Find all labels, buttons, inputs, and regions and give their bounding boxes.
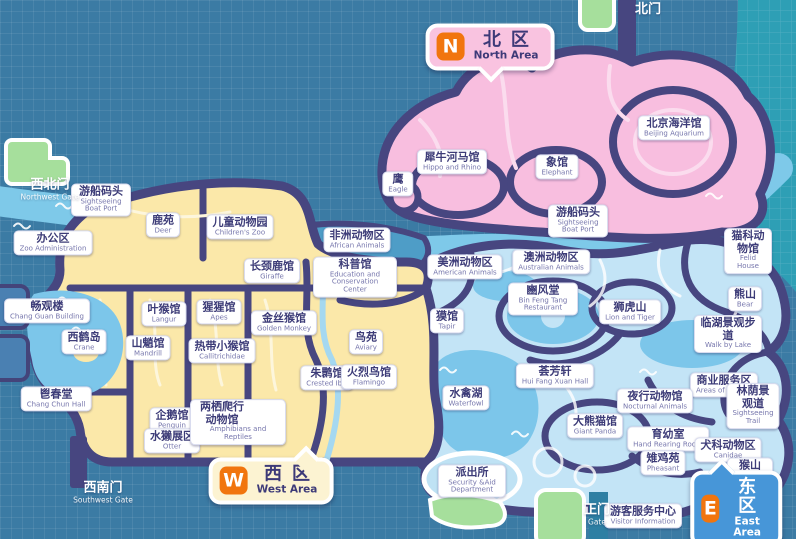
poi-name-zh: 山魈馆: [132, 337, 165, 350]
poi-boat-port-west: 游船码头 Sightseeing Boat Port: [71, 183, 131, 216]
poi-name-en: Golden Monkey: [257, 325, 311, 333]
poi-chang-chun-hall: 鬯春堂 Chang Chun Hall: [21, 386, 92, 411]
gate-name-en: Southwest Gate: [73, 496, 133, 505]
poi-hippo-rhino: 犀牛河马馆 Hippo and Rhino: [417, 149, 487, 174]
poi-tapir: 獏馆 Tapir: [430, 308, 464, 333]
poi-giant-panda: 大熊猫馆 Giant Panda: [567, 413, 623, 438]
poi-giraffe: 长颈鹿馆 Giraffe: [244, 258, 300, 283]
poi-name-zh: 鸟苑: [355, 331, 377, 344]
west-area-title: 西区: [257, 466, 328, 485]
poi-name-en: Lion and Tiger: [605, 314, 655, 322]
poi-name-zh: 荟芳轩: [522, 365, 588, 378]
poi-name-en: African Animals: [330, 242, 385, 250]
poi-name-zh: 长颈鹿馆: [250, 260, 294, 273]
poi-name-zh: 夜行动物馆: [623, 390, 687, 403]
poi-name-en: Giraffe: [250, 273, 294, 281]
east-area-title: 东区: [729, 479, 776, 517]
poi-name-zh: 科普馆: [319, 259, 391, 272]
poi-sightseeing-trail: 林荫景观道 Sightseeing Trail: [726, 383, 779, 429]
north-area-title: 北区: [474, 32, 549, 51]
poi-name-zh: 金丝猴馆: [257, 312, 311, 325]
poi-name-en: Elephant: [541, 169, 572, 177]
east-area-badge: E 东区 East Area: [690, 471, 782, 539]
poi-aviary: 鸟苑 Aviary: [349, 329, 383, 354]
poi-name-en: Tapir: [436, 323, 458, 331]
poi-name-zh: 办公区: [20, 232, 87, 245]
poi-walk-by-lake: 临湖景观步道 Walk by Lake: [694, 315, 762, 353]
poi-name-zh: 儿童动物园: [213, 216, 268, 229]
poi-lion-tiger: 狮虎山 Lion and Tiger: [599, 299, 661, 324]
poi-amphibians-reptiles: 两栖爬行动物馆 Amphibians and Reptiles: [190, 399, 286, 445]
poi-name-zh: 鹿苑: [152, 214, 174, 227]
poi-bear: 熊山 Bear: [728, 286, 762, 311]
west-area-subtitle: West Area: [257, 484, 318, 495]
poi-callitrichidae: 热带小猴馆 Callitrichidae: [189, 338, 256, 363]
poi-name-zh: 游船码头: [554, 206, 602, 219]
poi-childrens-zoo: 儿童动物园 Children's Zoo: [207, 214, 274, 239]
poi-mandrill: 山魈馆 Mandrill: [126, 335, 171, 360]
gate-main-gate: 正门 Gate: [584, 503, 610, 526]
poi-deer: 鹿苑 Deer: [146, 212, 180, 237]
poi-name-en: Walk by Lake: [700, 342, 756, 350]
poi-name-zh: 非洲动物区: [330, 229, 385, 242]
poi-name-en: Zoo Administration: [20, 245, 87, 253]
gate-name-zh: 西南门: [73, 481, 133, 495]
poi-name-zh: 犬科动物区: [701, 439, 756, 452]
west-area-letter-icon: W: [220, 467, 248, 495]
labels-layer: 北京海洋馆 Beijing Aquarium 犀牛河马馆 Hippo and R…: [0, 0, 796, 539]
poi-name-en: Callitrichidae: [195, 353, 250, 361]
poi-security-department: 派出所 Security &Aid Department: [438, 464, 506, 497]
poi-name-zh: 火烈鸟馆: [347, 366, 391, 379]
poi-name-en: Bin Feng Tang Restaurant: [514, 297, 572, 312]
poi-name-zh: 熊山: [734, 288, 756, 301]
poi-name-en: Otter: [150, 443, 194, 451]
poi-waterfowl-lake: 水禽湖 Waterfowl: [442, 385, 489, 410]
poi-name-zh: 象馆: [541, 156, 572, 169]
poi-american-animals: 美洲动物区 American Animals: [427, 254, 502, 279]
poi-zoo-administration: 办公区 Zoo Administration: [14, 230, 93, 255]
poi-name-zh: 派出所: [444, 466, 500, 479]
poi-hui-fang-xuan: 荟芳轩 Hui Fang Xuan Hall: [516, 363, 594, 388]
poi-elephant: 象馆 Elephant: [535, 154, 578, 179]
gate-north-gate: 北门: [635, 3, 661, 17]
gate-name-en: Gate: [584, 518, 610, 527]
poi-name-en: Flamingo: [347, 379, 391, 387]
poi-name-zh: 美洲动物区: [433, 256, 496, 269]
poi-bin-feng-tang: 豳风堂 Bin Feng Tang Restaurant: [508, 282, 578, 315]
poi-pheasant: 雉鸡苑 Pheasant: [641, 450, 686, 475]
poi-australian-animals: 澳洲动物区 Australian Animals: [512, 249, 590, 274]
gate-name-zh: 正门: [584, 503, 610, 517]
poi-name-zh: 猩猩馆: [203, 301, 236, 314]
poi-name-zh: 游船码头: [77, 185, 125, 198]
west-area-badge: W 西区 West Area: [209, 458, 334, 505]
poi-name-zh: 育幼室: [633, 428, 703, 441]
poi-name-zh: 犀牛河马馆: [423, 151, 481, 164]
poi-name-en: Langur: [148, 316, 181, 324]
poi-name-en: Children's Zoo: [213, 229, 268, 237]
poi-name-zh: 林荫景观道: [732, 385, 773, 410]
poi-name-zh: 猫科动物馆: [730, 230, 766, 255]
poi-name-zh: 热带小猴馆: [195, 340, 250, 353]
gate-southwest-gate: 西南门 Southwest Gate: [73, 481, 133, 504]
poi-name-en: American Animals: [433, 269, 496, 277]
poi-name-en: Mandrill: [132, 350, 165, 358]
poi-boat-port-east: 游船码头 Sightseeing Boat Port: [548, 204, 608, 237]
poi-name-en: Sightseeing Trail: [732, 410, 773, 425]
poi-name-zh: 獏馆: [436, 310, 458, 323]
poi-eagle: 鹰 Eagle: [382, 171, 413, 196]
poi-education-center: 科普馆 Education and Conservation Center: [313, 257, 397, 298]
poi-name-zh: 北京海洋馆: [644, 117, 704, 130]
poi-langur: 叶猴馆 Langur: [142, 301, 187, 326]
poi-felid-house: 猫科动物馆 Felid House: [724, 228, 772, 274]
poi-name-en: Chang Guan Building: [10, 313, 84, 321]
poi-name-en: Visitor Information: [610, 518, 676, 526]
north-area-subtitle: North Area: [474, 50, 539, 61]
poi-name-zh: 豳风堂: [514, 284, 572, 297]
poi-name-en: Amphibians and Reptiles: [196, 426, 280, 441]
east-area-letter-icon: E: [701, 495, 719, 523]
poi-name-en: Waterfowl: [448, 400, 483, 408]
poi-name-en: Deer: [152, 227, 174, 235]
poi-name-zh: 水獭展区: [150, 430, 194, 443]
gate-name-en: Northwest Gate: [21, 193, 80, 202]
poi-name-en: Sightseeing Boat Port: [77, 198, 125, 213]
poi-crane-island: 西鹤岛 Crane: [62, 329, 107, 354]
poi-name-en: Education and Conservation Center: [319, 271, 391, 294]
poi-name-zh: 鹰: [388, 173, 407, 186]
poi-name-en: Sightseeing Boat Port: [554, 219, 602, 234]
poi-name-en: Security &Aid Department: [444, 479, 500, 494]
poi-name-zh: 鬯春堂: [27, 388, 86, 401]
poi-name-zh: 临湖景观步道: [700, 317, 756, 342]
poi-beijing-aquarium: 北京海洋馆 Beijing Aquarium: [638, 115, 710, 140]
poi-name-en: Hippo and Rhino: [423, 164, 481, 172]
poi-name-en: Apes: [203, 314, 236, 322]
poi-name-en: Crane: [68, 344, 101, 352]
poi-name-zh: 叶猴馆: [148, 303, 181, 316]
poi-golden-monkey: 金丝猴馆 Golden Monkey: [251, 310, 317, 335]
poi-name-zh: 澳洲动物区: [518, 251, 584, 264]
poi-name-zh: 两栖爬行动物馆: [196, 401, 248, 426]
poi-name-en: Giant Panda: [573, 428, 617, 436]
poi-name-zh: 水禽湖: [448, 387, 483, 400]
poi-apes: 猩猩馆 Apes: [197, 299, 242, 324]
poi-name-en: Pheasant: [647, 465, 680, 473]
gate-name-zh: 北门: [635, 3, 661, 17]
gate-northwest-gate: 西北门 Northwest Gate: [21, 178, 80, 201]
poi-name-en: Bear: [734, 301, 756, 309]
east-area-subtitle: East Area: [729, 516, 766, 538]
poi-name-en: Aviary: [355, 344, 377, 352]
poi-name-zh: 狮虎山: [605, 301, 655, 314]
poi-name-en: Nocturnal Animals: [623, 403, 687, 411]
poi-visitor-information: 游客服务中心 Visitor Information: [604, 503, 682, 528]
poi-name-zh: 西鹤岛: [68, 331, 101, 344]
poi-name-en: Hand Rearing Room: [633, 441, 703, 449]
poi-name-en: Eagle: [388, 186, 407, 194]
poi-african-animals: 非洲动物区 African Animals: [324, 227, 391, 252]
poi-name-en: Beijing Aquarium: [644, 130, 704, 138]
poi-name-en: Felid House: [730, 255, 766, 270]
north-area-letter-icon: N: [437, 33, 465, 61]
poi-name-zh: 雉鸡苑: [647, 452, 680, 465]
poi-name-zh: 畅观楼: [10, 300, 84, 313]
poi-flamingo: 火烈鸟馆 Flamingo: [341, 364, 397, 389]
zoo-map: 北京海洋馆 Beijing Aquarium 犀牛河马馆 Hippo and R…: [0, 0, 796, 539]
gate-name-zh: 西北门: [21, 178, 80, 192]
poi-nocturnal-animals: 夜行动物馆 Nocturnal Animals: [617, 388, 693, 413]
poi-name-en: Hui Fang Xuan Hall: [522, 378, 588, 386]
north-area-badge: N 北区 North Area: [426, 24, 555, 71]
poi-name-en: Chang Chun Hall: [27, 401, 86, 409]
poi-name-en: Australian Animals: [518, 264, 584, 272]
poi-name-zh: 企鹅馆: [156, 409, 189, 422]
poi-name-zh: 游客服务中心: [610, 505, 676, 518]
poi-name-zh: 大熊猫馆: [573, 415, 617, 428]
poi-chang-guan-building: 畅观楼 Chang Guan Building: [4, 298, 90, 323]
